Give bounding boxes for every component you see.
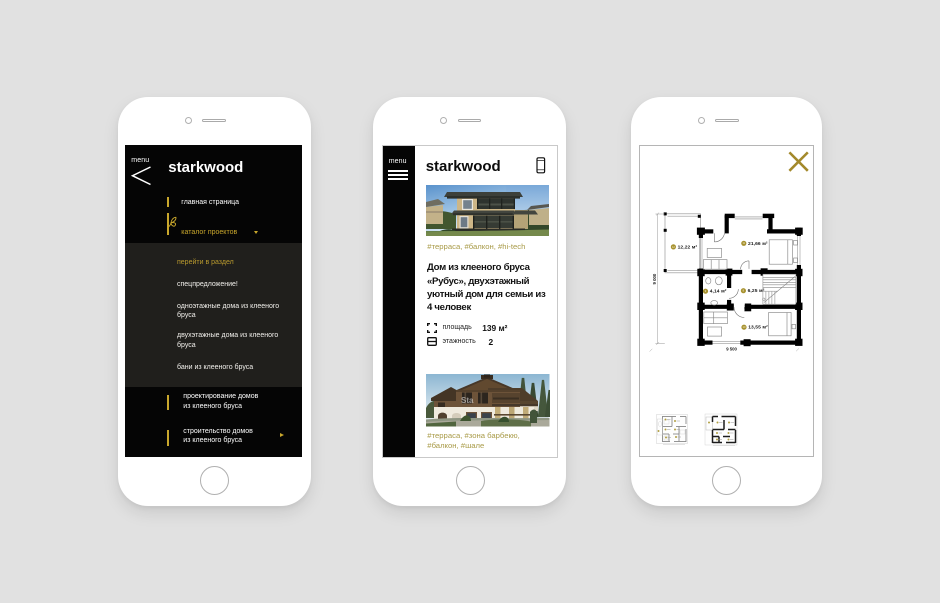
svg-text:6,25 м²: 6,25 м² [748,288,765,294]
svg-text:9 000: 9 000 [652,273,657,284]
svg-text:12,22 м²: 12,22 м² [678,244,698,250]
svg-text:13,55 м²: 13,55 м² [748,325,768,331]
svg-text:21,66 м²: 21,66 м² [748,241,768,247]
svg-text:Sta: Sta [461,396,474,405]
svg-text:9 500: 9 500 [726,346,737,351]
svg-text:4,14 м²: 4,14 м² [710,289,727,295]
